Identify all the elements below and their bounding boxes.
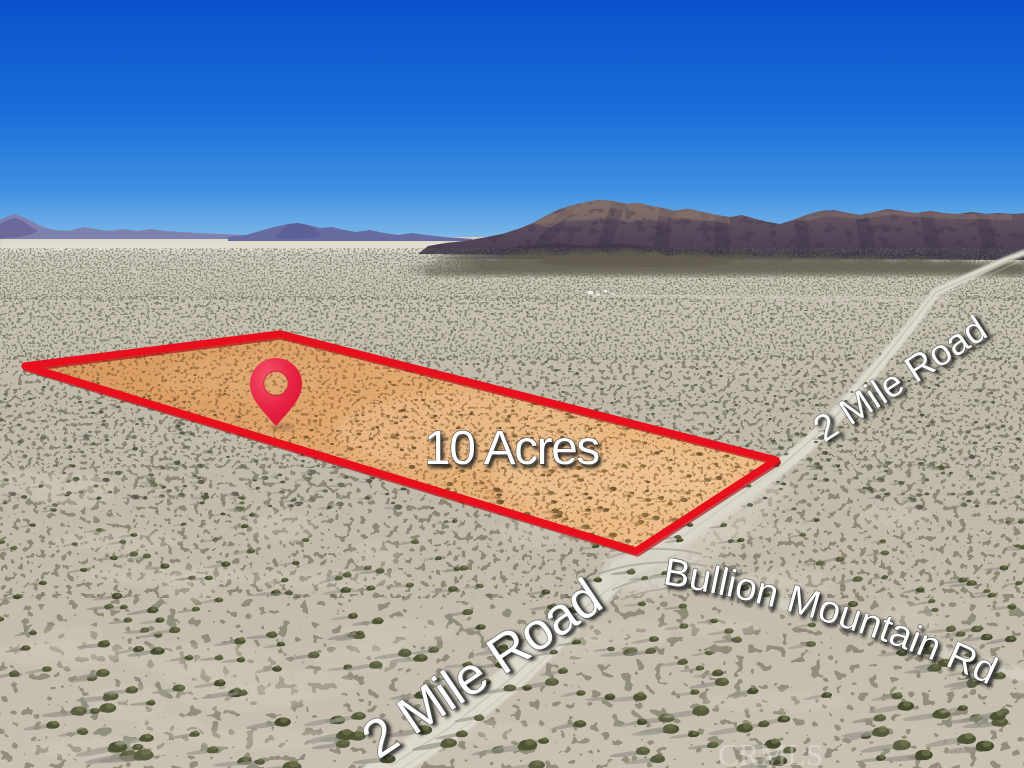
svg-text:CRMLS: CRMLS	[718, 737, 823, 768]
svg-text:10 Acres: 10 Acres	[424, 422, 599, 475]
